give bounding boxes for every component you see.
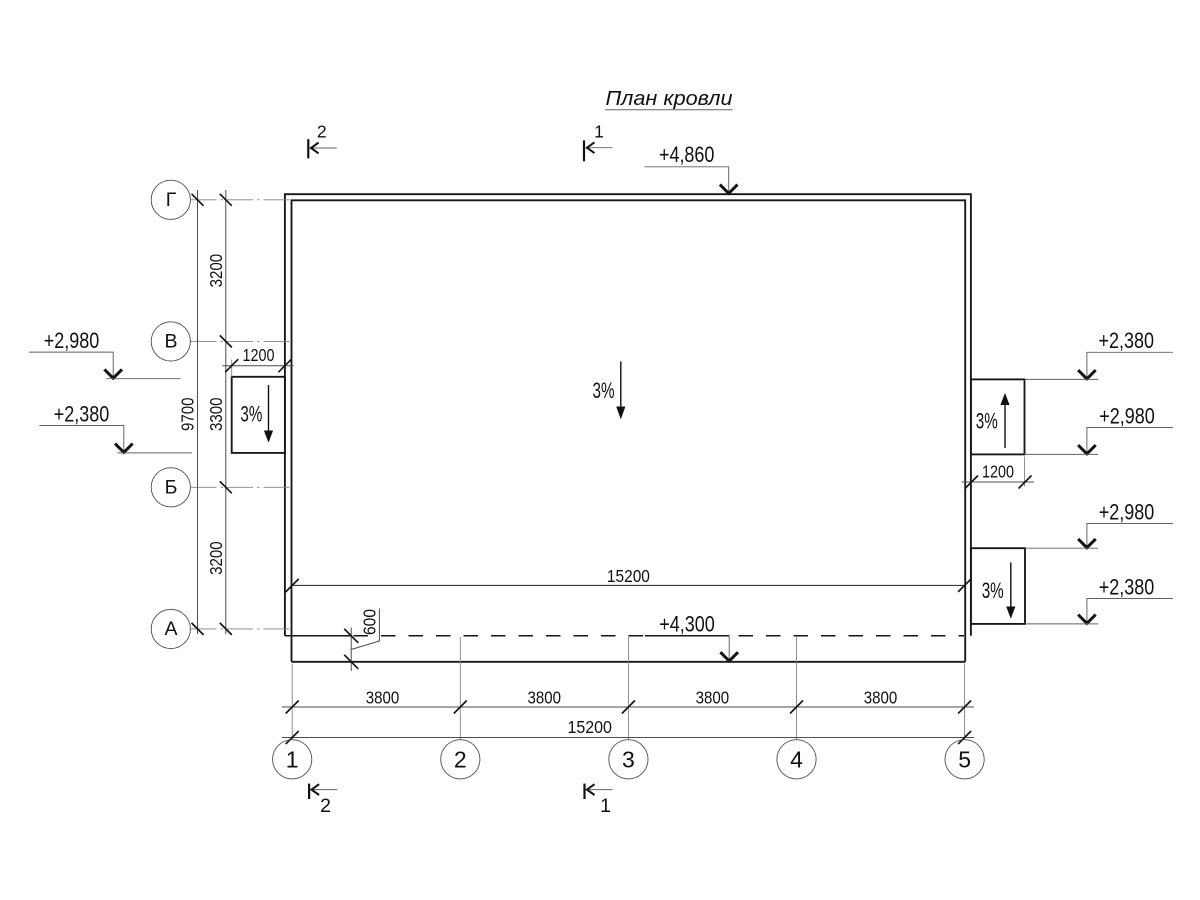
svg-text:2: 2 — [454, 747, 467, 773]
svg-text:+2,380: +2,380 — [1099, 328, 1155, 353]
svg-text:1: 1 — [594, 122, 604, 142]
svg-text:1200: 1200 — [243, 345, 275, 365]
svg-text:3200: 3200 — [206, 541, 226, 575]
svg-text:15200: 15200 — [567, 717, 612, 737]
svg-text:3200: 3200 — [206, 254, 226, 288]
svg-text:600: 600 — [360, 609, 380, 635]
svg-text:2: 2 — [320, 795, 331, 817]
svg-text:3300: 3300 — [206, 397, 226, 431]
svg-text:3%: 3% — [976, 408, 998, 433]
svg-text:5: 5 — [958, 747, 971, 773]
svg-text:+2,980: +2,980 — [1099, 403, 1155, 428]
svg-text:3%: 3% — [982, 578, 1004, 603]
svg-text:1: 1 — [286, 747, 299, 773]
svg-text:3800: 3800 — [696, 687, 730, 707]
svg-text:3%: 3% — [593, 378, 615, 403]
svg-text:+2,980: +2,980 — [44, 328, 100, 353]
svg-text:1: 1 — [600, 795, 611, 817]
svg-text:План кровли: План кровли — [606, 88, 733, 110]
svg-text:+4,860: +4,860 — [659, 142, 715, 167]
svg-text:3: 3 — [622, 747, 635, 773]
svg-text:Г: Г — [166, 189, 177, 211]
svg-text:15200: 15200 — [607, 566, 650, 586]
svg-text:1200: 1200 — [982, 462, 1014, 482]
svg-text:Б: Б — [165, 477, 178, 499]
svg-text:В: В — [164, 331, 177, 353]
svg-text:+2,980: +2,980 — [1099, 499, 1155, 524]
svg-text:3800: 3800 — [528, 687, 562, 707]
svg-text:3800: 3800 — [864, 687, 898, 707]
svg-text:4: 4 — [790, 747, 803, 773]
svg-text:3800: 3800 — [366, 687, 400, 707]
svg-text:3%: 3% — [240, 401, 262, 426]
svg-text:+2,380: +2,380 — [1099, 574, 1155, 599]
svg-text:А: А — [164, 618, 177, 640]
svg-text:9700: 9700 — [178, 397, 198, 431]
svg-text:+4,300: +4,300 — [659, 611, 715, 636]
svg-text:+2,380: +2,380 — [54, 401, 110, 426]
svg-text:2: 2 — [317, 122, 327, 142]
